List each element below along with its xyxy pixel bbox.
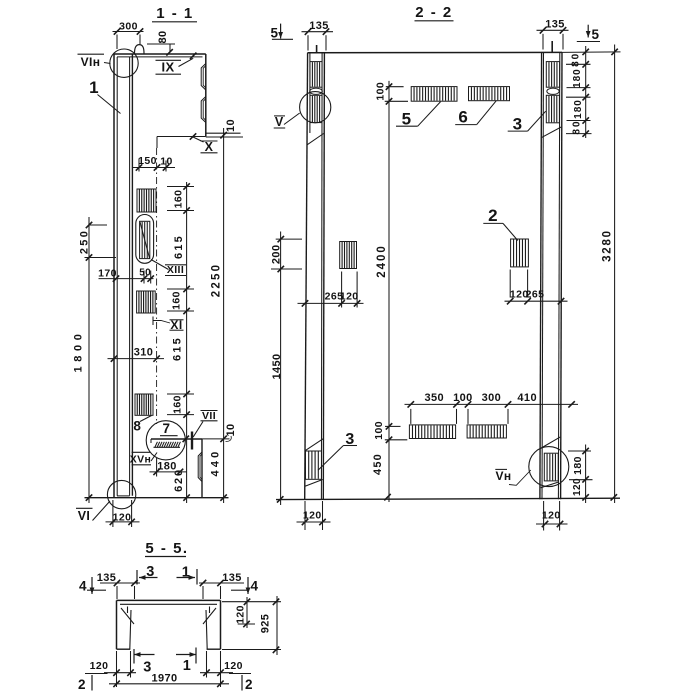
svg-text:3: 3 [143, 660, 151, 676]
svg-text:615: 615 [173, 234, 185, 259]
svg-text:180: 180 [573, 99, 584, 119]
svg-text:120: 120 [542, 510, 561, 522]
svg-text:120: 120 [340, 290, 359, 302]
svg-text:265: 265 [526, 288, 545, 300]
svg-text:1 - 1: 1 - 1 [156, 5, 194, 22]
svg-text:2250: 2250 [211, 263, 223, 297]
svg-text:120: 120 [224, 660, 243, 672]
svg-text:2: 2 [245, 677, 253, 692]
svg-text:150: 150 [138, 155, 157, 167]
svg-text:925: 925 [260, 614, 272, 634]
svg-text:80: 80 [157, 30, 169, 43]
svg-text:615: 615 [172, 336, 184, 361]
svg-text:180: 180 [572, 456, 584, 475]
svg-text:135: 135 [309, 20, 329, 32]
svg-text:80: 80 [572, 119, 583, 134]
svg-text:1: 1 [183, 658, 191, 674]
svg-text:XVн: XVн [130, 454, 152, 466]
svg-text:200: 200 [270, 245, 282, 265]
svg-text:135: 135 [97, 572, 117, 584]
svg-text:180: 180 [572, 68, 583, 88]
svg-text:135: 135 [222, 572, 242, 584]
svg-text:10: 10 [225, 119, 237, 132]
svg-text:300: 300 [119, 21, 138, 33]
svg-text:120: 120 [235, 605, 247, 624]
svg-text:1800: 1800 [73, 330, 85, 373]
svg-text:170: 170 [98, 268, 117, 280]
svg-text:160: 160 [172, 190, 184, 209]
svg-text:8: 8 [133, 419, 141, 434]
svg-text:50: 50 [139, 268, 151, 279]
svg-text:440: 440 [210, 449, 222, 477]
svg-text:160: 160 [171, 395, 183, 414]
svg-text:IX: IX [161, 60, 174, 75]
svg-text:120: 120 [90, 660, 109, 672]
svg-text:XIII: XIII [167, 264, 184, 276]
svg-text:3280: 3280 [601, 229, 613, 262]
svg-text:100: 100 [453, 392, 473, 404]
svg-text:3: 3 [146, 564, 154, 580]
svg-text:5 - 5.: 5 - 5. [145, 540, 188, 557]
svg-text:300: 300 [482, 392, 502, 404]
svg-text:350: 350 [425, 392, 445, 404]
svg-text:120: 120 [303, 510, 322, 522]
svg-text:160: 160 [170, 291, 182, 310]
svg-text:V: V [275, 115, 284, 129]
svg-text:135: 135 [545, 18, 565, 30]
svg-text:1: 1 [182, 565, 190, 581]
svg-text:250: 250 [79, 229, 91, 254]
svg-text:450: 450 [372, 453, 384, 475]
svg-text:5: 5 [402, 110, 412, 129]
svg-text:180: 180 [157, 461, 177, 473]
svg-text:2: 2 [78, 677, 86, 692]
svg-text:120: 120 [113, 512, 132, 524]
svg-text:1450: 1450 [271, 353, 283, 379]
svg-text:80: 80 [570, 52, 581, 67]
svg-text:VII: VII [202, 410, 216, 422]
svg-text:2400: 2400 [376, 244, 388, 278]
svg-text:2 - 2: 2 - 2 [415, 4, 453, 21]
svg-text:310: 310 [134, 347, 154, 359]
svg-text:1970: 1970 [151, 673, 177, 685]
svg-text:5: 5 [592, 27, 600, 42]
svg-text:4: 4 [251, 579, 259, 594]
svg-text:VI: VI [78, 509, 91, 523]
svg-text:7: 7 [163, 421, 171, 436]
svg-text:10: 10 [225, 423, 237, 436]
svg-text:100: 100 [375, 82, 387, 101]
svg-text:2: 2 [488, 206, 498, 225]
svg-text:1: 1 [89, 78, 99, 97]
svg-text:6: 6 [458, 108, 468, 127]
svg-text:100: 100 [373, 421, 385, 440]
svg-text:4: 4 [79, 579, 87, 594]
svg-text:410: 410 [517, 392, 537, 404]
svg-text:X: X [205, 140, 214, 154]
svg-text:5: 5 [271, 26, 279, 41]
svg-text:VIн: VIн [81, 55, 101, 69]
svg-text:120: 120 [572, 478, 583, 496]
svg-text:Vн: Vн [495, 469, 511, 483]
